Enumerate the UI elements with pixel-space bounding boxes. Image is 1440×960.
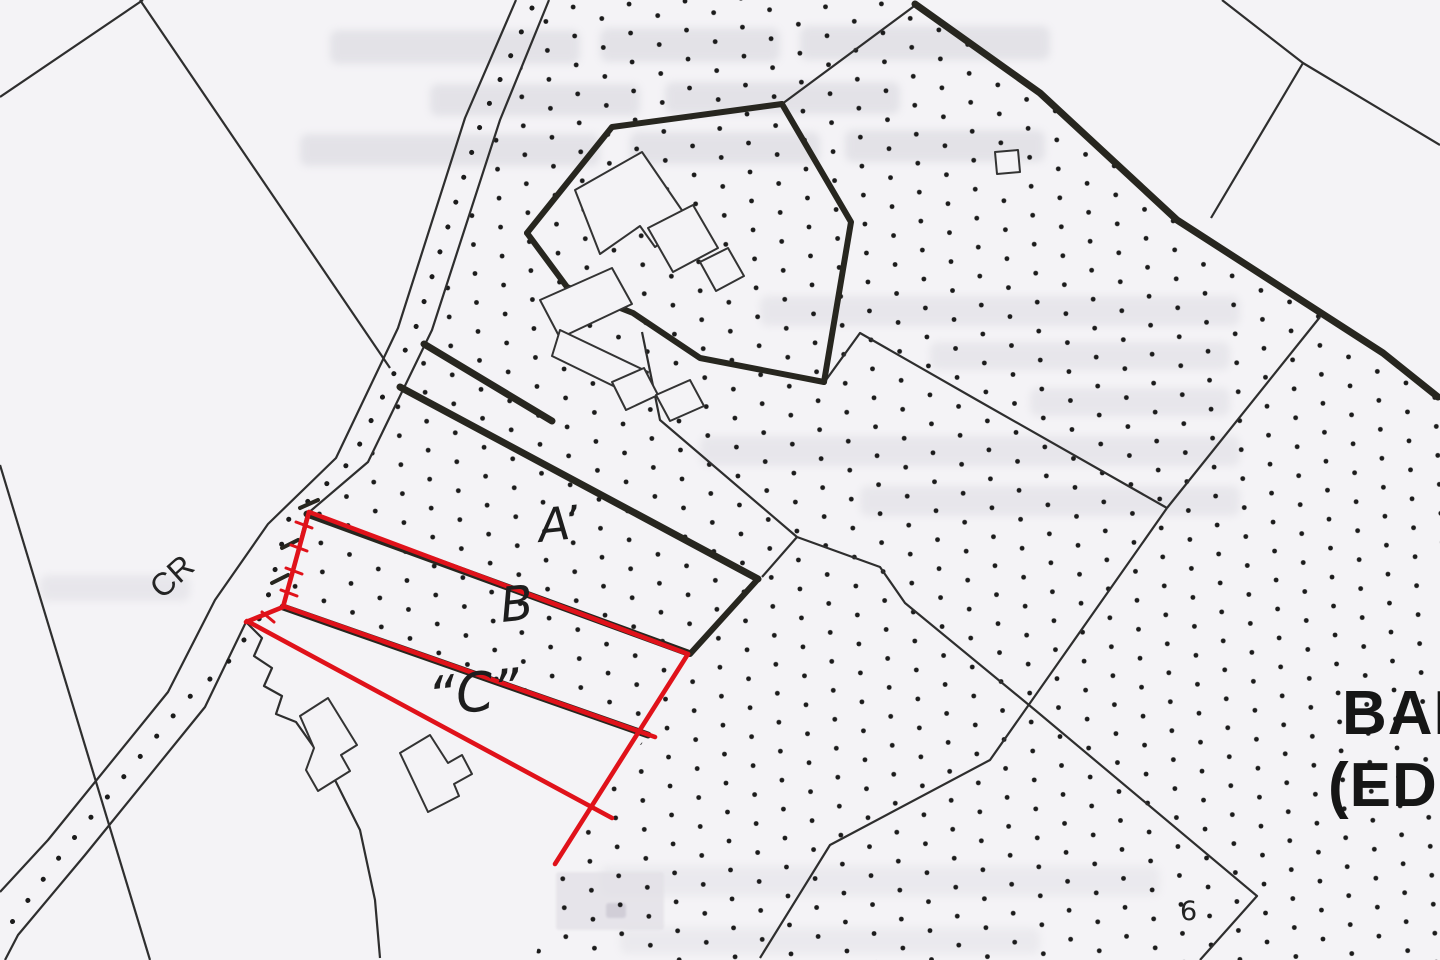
parcel-line-topright2 [1211,63,1303,218]
townland-name-line1: BAL [1342,679,1440,748]
boundary-lower-left [0,465,150,960]
site-map-page: CR A’ B “C” 6 BAL (ED [0,0,1440,960]
map-canvas: CR A’ B “C” 6 BAL (ED [0,0,1440,960]
house-east-l-shape [400,735,472,812]
boundary-west-of-road [140,0,390,368]
boundary-topleft-corner [0,0,143,97]
plot-a-label: A’ [533,495,582,553]
stippled-field [247,0,1440,960]
road-label: CR [143,548,201,606]
plot-c-label: “C” [425,657,525,729]
outbuilding-topright [995,150,1020,174]
townland-name-line2: (ED [1328,751,1438,820]
house-west-l-shape [300,698,357,791]
parcel-line-topright1 [1222,0,1440,145]
plot-b-label: B [497,575,536,634]
parcel-number-label: 6 [1180,896,1197,927]
